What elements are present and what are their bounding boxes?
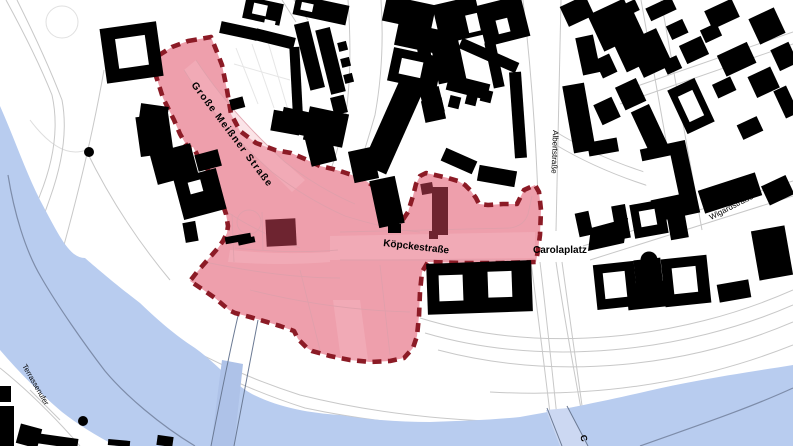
svg-text:Carolaplatz: Carolaplatz — [533, 245, 587, 256]
svg-text:Albertstraße: Albertstraße — [549, 130, 560, 174]
